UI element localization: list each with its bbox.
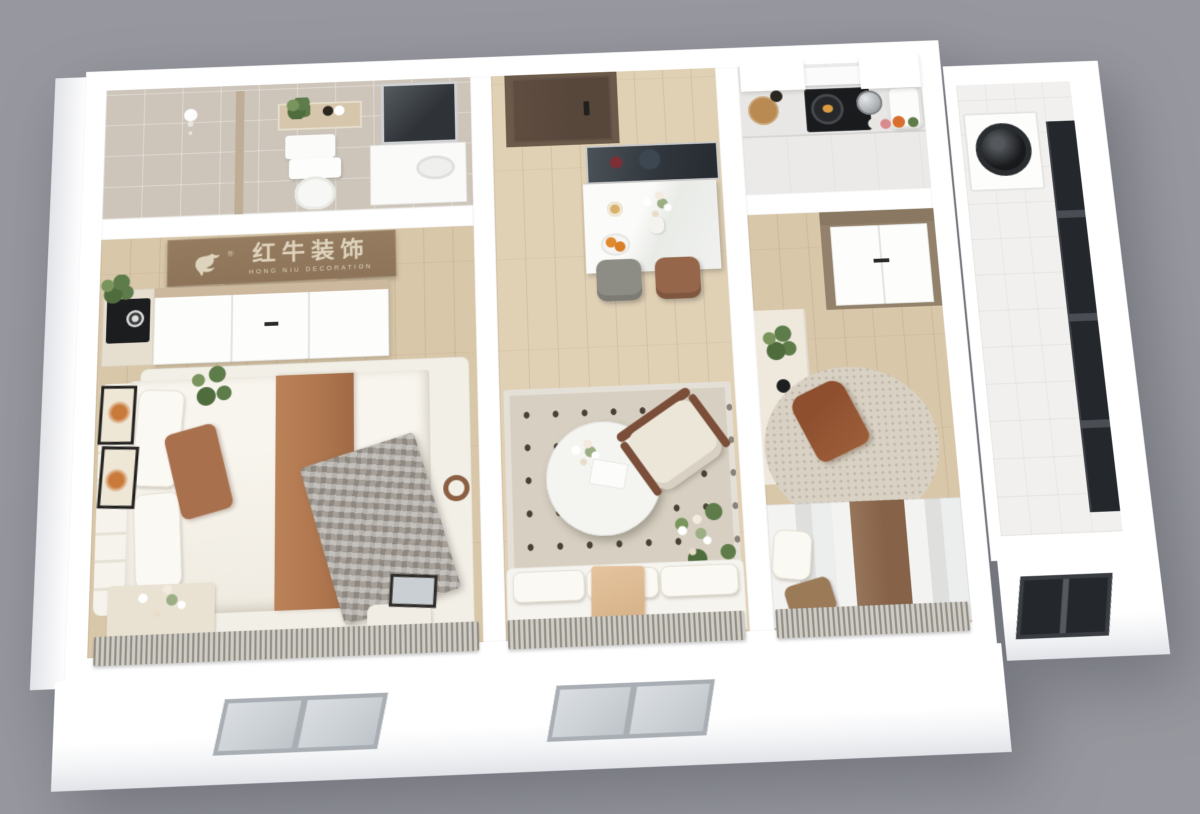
apartment-render: ® 红牛装饰 HONG NIU DECORATION — [18, 23, 1200, 814]
sofa-cushion-1 — [512, 569, 585, 603]
window-pane — [218, 700, 302, 751]
floor-mirror-tray — [389, 574, 438, 609]
shelf-plant — [285, 97, 310, 119]
wardrobe1-handle — [264, 322, 278, 326]
logo-texts: 红牛装饰 HONG NIU DECORATION — [249, 238, 373, 276]
window-pane — [298, 697, 383, 748]
dried-flowers — [113, 574, 211, 632]
window-pane — [630, 684, 710, 735]
upper-cabinet-right — [858, 53, 922, 89]
bedroom1-plant — [182, 360, 237, 417]
window-mullion — [1068, 313, 1098, 322]
dining-chair-brown — [654, 256, 701, 299]
bedroom2-pillow-white — [771, 529, 812, 581]
door-handle — [583, 101, 589, 116]
shelf-bottles — [322, 105, 347, 117]
south-window-right — [547, 679, 715, 742]
desk-plant — [756, 323, 798, 367]
bull-logo-icon — [190, 247, 224, 277]
kitchen-props — [867, 114, 924, 132]
scene-background: ® 红牛装饰 HONG NIU DECORATION — [0, 0, 1200, 800]
upper-cabinet-left — [739, 59, 806, 92]
entry-door — [511, 75, 613, 143]
dining-chair-gray — [596, 258, 643, 301]
balcony-window-south — [1016, 573, 1112, 640]
towel — [285, 134, 335, 159]
registered-mark: ® — [228, 249, 234, 258]
bathroom-mirror — [381, 81, 458, 145]
sofa-cushion-3 — [660, 563, 740, 597]
logo-text-cn: 红牛装饰 — [252, 238, 369, 266]
window-mullion — [1080, 419, 1111, 428]
wardrobe1-seam-2 — [308, 292, 310, 359]
tv — [585, 141, 720, 184]
wall-art-frame-1 — [97, 386, 137, 445]
south-window-left — [213, 693, 388, 756]
window-mullion — [1056, 210, 1086, 219]
window-mullion — [1060, 579, 1070, 634]
nightstand-fern — [95, 274, 135, 306]
window-pane — [552, 687, 631, 737]
wall-art-frame-2 — [97, 446, 139, 509]
shower-partition — [234, 91, 244, 215]
toilet-bowl — [295, 176, 336, 211]
flower-vase — [648, 217, 664, 234]
wardrobe-handles — [873, 258, 889, 262]
